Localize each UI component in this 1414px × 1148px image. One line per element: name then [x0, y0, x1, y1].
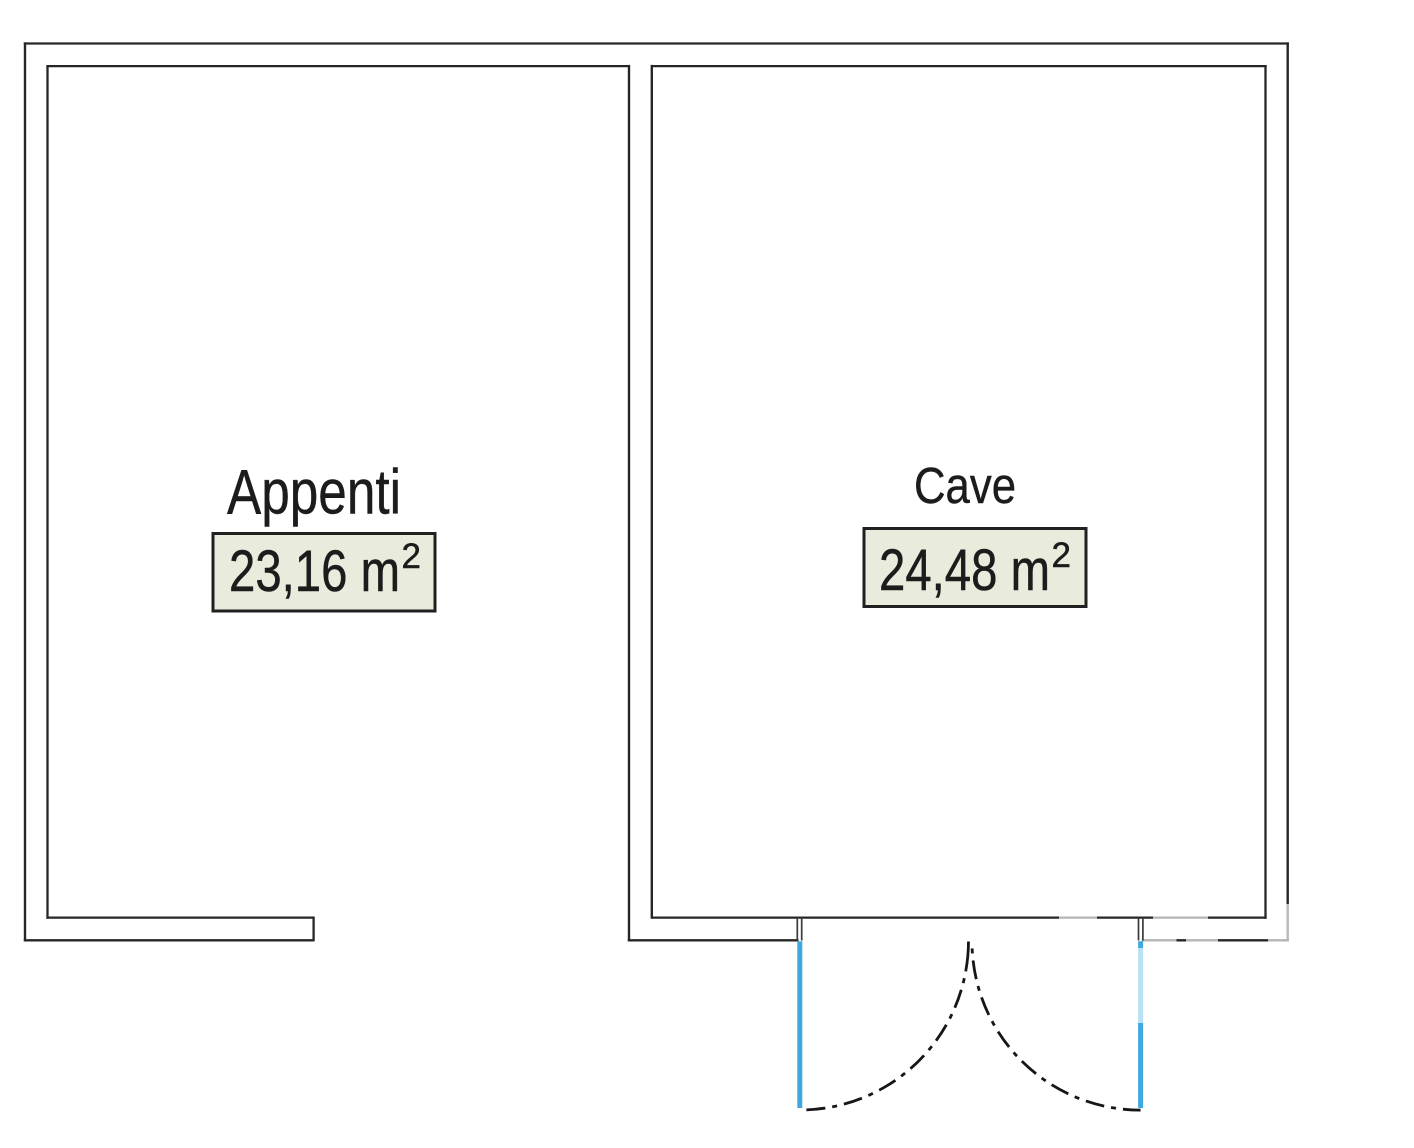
svg-text:Appenti: Appenti: [227, 458, 401, 528]
svg-text:Cave: Cave: [914, 457, 1016, 514]
svg-text:2: 2: [402, 537, 421, 576]
svg-text:23,16 m: 23,16 m: [229, 539, 400, 604]
svg-text:24,48 m: 24,48 m: [879, 538, 1050, 603]
svg-text:2: 2: [1052, 536, 1071, 575]
